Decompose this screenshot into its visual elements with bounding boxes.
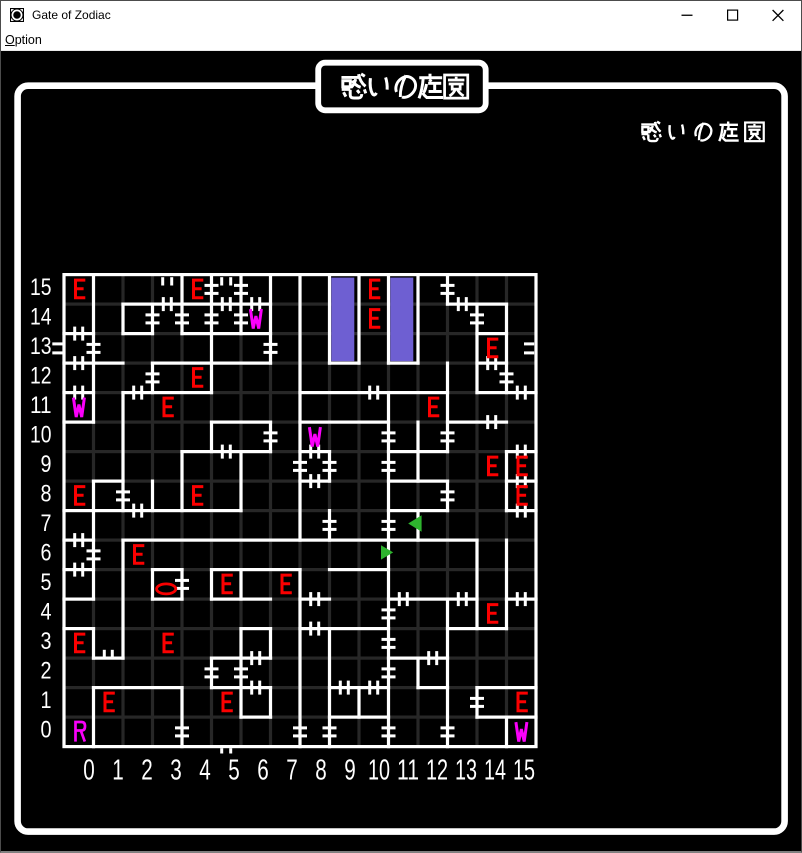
svg-text:5: 5	[228, 755, 240, 787]
svg-text:3: 3	[170, 755, 182, 787]
svg-text:13: 13	[30, 333, 52, 360]
svg-text:14: 14	[30, 303, 52, 330]
svg-text:12: 12	[30, 362, 52, 389]
svg-text:7: 7	[286, 755, 298, 787]
svg-text:8: 8	[41, 480, 52, 507]
svg-text:12: 12	[426, 755, 448, 787]
svg-text:0: 0	[41, 716, 52, 743]
svg-text:9: 9	[344, 755, 356, 787]
svg-text:14: 14	[484, 755, 506, 787]
svg-text:6: 6	[257, 755, 269, 787]
svg-text:3: 3	[41, 628, 52, 655]
svg-text:6: 6	[41, 539, 52, 566]
svg-text:2: 2	[141, 755, 153, 787]
svg-text:11: 11	[397, 755, 419, 787]
svg-text:11: 11	[30, 392, 52, 419]
svg-text:10: 10	[30, 421, 52, 448]
svg-text:0: 0	[83, 755, 95, 787]
svg-text:15: 15	[513, 755, 535, 787]
svg-text:1: 1	[112, 755, 124, 787]
svg-text:8: 8	[315, 755, 327, 787]
svg-text:1: 1	[41, 687, 52, 714]
svg-text:2: 2	[41, 657, 52, 684]
svg-text:5: 5	[41, 569, 52, 596]
svg-text:4: 4	[199, 755, 211, 787]
svg-text:13: 13	[455, 755, 477, 787]
svg-text:15: 15	[30, 274, 52, 301]
svg-text:7: 7	[41, 510, 52, 537]
svg-text:10: 10	[368, 755, 390, 787]
svg-text:9: 9	[41, 451, 52, 478]
svg-text:4: 4	[41, 598, 52, 625]
